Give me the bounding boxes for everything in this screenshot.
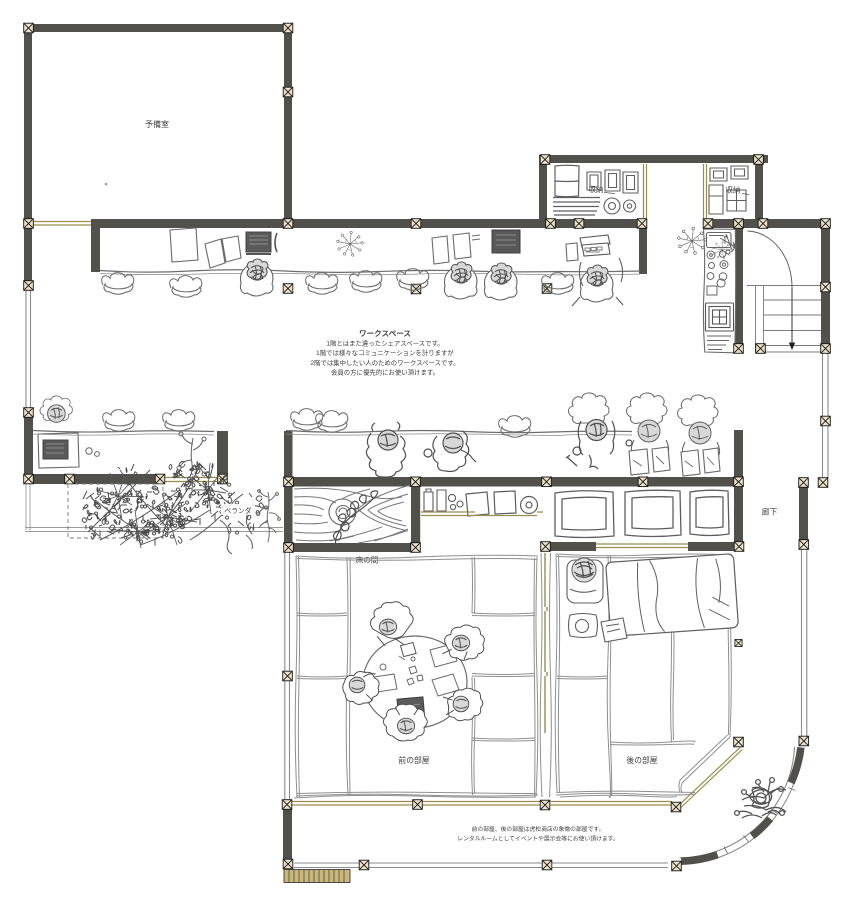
svg-text:ワークスペース: ワークスペース: [359, 328, 411, 338]
svg-text:1階では様々なコミュニケーションを計りますが: 1階では様々なコミュニケーションを計りますが: [316, 348, 454, 357]
svg-text:前の部屋: 前の部屋: [398, 755, 429, 765]
svg-text:後の部屋: 後の部屋: [626, 755, 657, 765]
svg-text:前の部屋、後の部屋は虎松商店の象徴の部屋です。: 前の部屋、後の部屋は虎松商店の象徴の部屋です。: [472, 825, 605, 833]
svg-text:ベランダ: ベランダ: [224, 506, 251, 515]
svg-text:会員の方に優先的にお使い頂けます。: 会員の方に優先的にお使い頂けます。: [331, 367, 439, 376]
svg-text:廊下: 廊下: [762, 507, 778, 517]
svg-text:レンタルルームとしてイベントや展示会等にお使い頂けます。: レンタルルームとしてイベントや展示会等にお使い頂けます。: [457, 835, 618, 843]
svg-text:収納: 収納: [726, 186, 741, 195]
svg-text:1階とはまた違ったシェアスペースです。: 1階とはまた違ったシェアスペースです。: [326, 339, 443, 348]
svg-text:2階では集中したい人のためのワークスペースです。: 2階では集中したい人のためのワークスペースです。: [311, 358, 460, 367]
svg-text:予備室: 予備室: [145, 119, 169, 129]
svg-text:収納: 収納: [589, 185, 604, 194]
svg-text:床の間: 床の間: [356, 555, 379, 565]
